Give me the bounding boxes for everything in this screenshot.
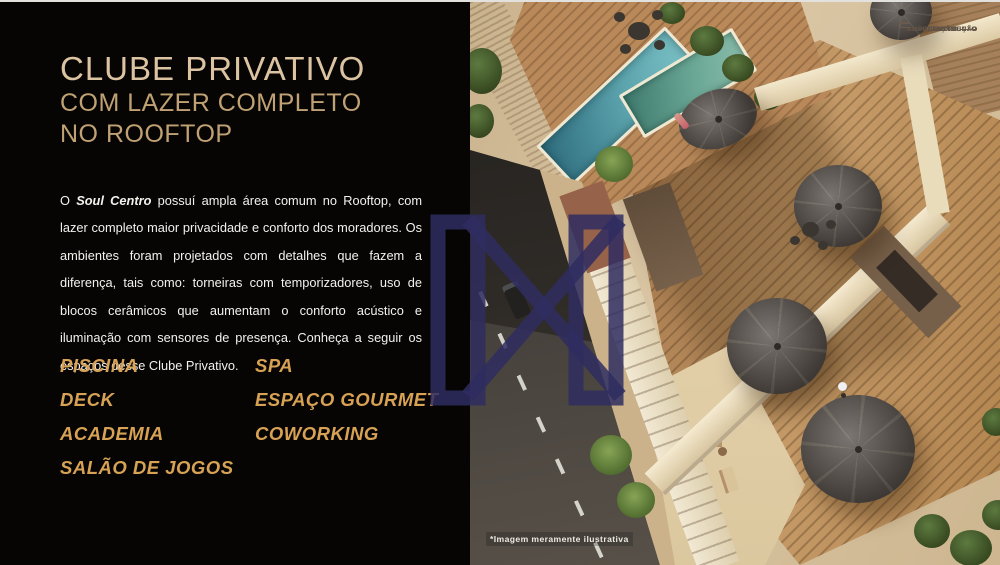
amenity-espaco-gourmet: ESPAÇO GOURMET [255,383,438,417]
amenity-salao-de-jogos: SALÃO DE JOGOS [60,451,234,485]
page-subtitle: COM LAZER COMPLETO NO ROOFTOP [60,88,362,150]
developer-stamp: ASSOCIAÇÃO PRÓ-CONSTRUÇÃO EMPREENDIMENTO… [900,22,1000,28]
palm-plant [595,146,633,182]
intro-prefix: O [60,193,76,208]
table [802,222,819,237]
umbrella [801,395,915,503]
amenities-column-left: PISCINA DECK ACADEMIA SALÃO DE JOGOS [60,349,234,485]
plant [914,514,950,548]
sidewalk-palm [617,482,655,518]
amenity-piscina: PISCINA [60,349,234,383]
subtitle-line-2: NO ROOFTOP [60,119,362,150]
table [628,22,650,40]
chair [818,241,828,250]
plant [690,26,724,56]
top-border-line [0,0,1000,2]
amenities-column-right: SPA ESPAÇO GOURMET COWORKING [255,349,438,451]
amenity-deck: DECK [60,383,234,417]
amenity-coworking: COWORKING [255,417,438,451]
chair [654,40,665,50]
text-panel: CLUBE PRIVATIVO COM LAZER COMPLETO NO RO… [0,0,470,565]
plant [659,2,685,24]
intro-body: possuí ampla área comum no Rooftop, com … [60,193,422,373]
plant [722,54,754,82]
chair [652,10,663,20]
sidewalk-palm [590,435,632,475]
plant [950,530,992,565]
amenity-academia: ACADEMIA [60,417,234,451]
brand-name: Soul Centro [76,193,151,208]
chair [620,44,631,54]
soul-logo-watermark [424,210,630,410]
kitchen-stool [718,447,727,456]
umbrella [727,298,827,394]
stamp-line-4: SOULCENTRO [907,25,977,35]
chair [790,236,800,245]
chair [826,220,836,229]
subtitle-line-1: COM LAZER COMPLETO [60,88,362,119]
brochure-page: CLUBE PRIVATIVO COM LAZER COMPLETO NO RO… [0,0,1000,565]
amenity-spa: SPA [255,349,438,383]
page-title: CLUBE PRIVATIVO [60,50,365,88]
photo-disclaimer-caption: *Imagem meramente ilustrativa [486,532,633,546]
chair [614,12,625,22]
person-on-deck [838,382,847,391]
